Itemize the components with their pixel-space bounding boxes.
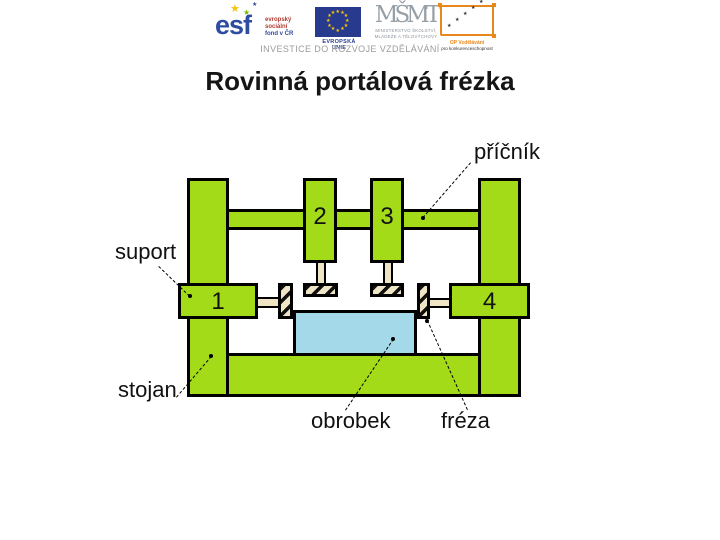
part-number-4: 4	[449, 289, 530, 315]
machine-diagram: 1 2 3 4 příčník suport stojan obrobek fr…	[0, 0, 720, 540]
obrobek-workpiece	[293, 310, 417, 356]
leader-dot-stojan	[209, 354, 213, 358]
label-obrobek: obrobek	[311, 409, 391, 433]
label-suport: suport	[115, 240, 176, 264]
part-number-1: 1	[178, 289, 258, 315]
machine-bed	[226, 353, 481, 397]
leader-dot-suport	[188, 294, 192, 298]
freza-cutter-2	[303, 283, 338, 297]
label-stojan: stojan	[118, 378, 177, 402]
freza-cutter-4	[417, 283, 430, 319]
part-number-3: 3	[370, 204, 404, 230]
leader-line-suport	[158, 266, 190, 297]
leader-dot-obrobek	[391, 337, 395, 341]
part-number-2: 2	[303, 204, 337, 230]
freza-cutter-3	[370, 283, 404, 297]
label-freza: fréza	[441, 409, 490, 433]
label-pricnik: příčník	[474, 140, 540, 164]
freza-cutter-1	[278, 283, 293, 319]
leader-dot-freza	[425, 319, 429, 323]
slide-canvas: ★ ★ ★ esf evropský sociální fond v ČR ★ …	[0, 0, 720, 540]
leader-dot-pricnik	[421, 216, 425, 220]
pricnik-crossbeam	[226, 209, 481, 230]
